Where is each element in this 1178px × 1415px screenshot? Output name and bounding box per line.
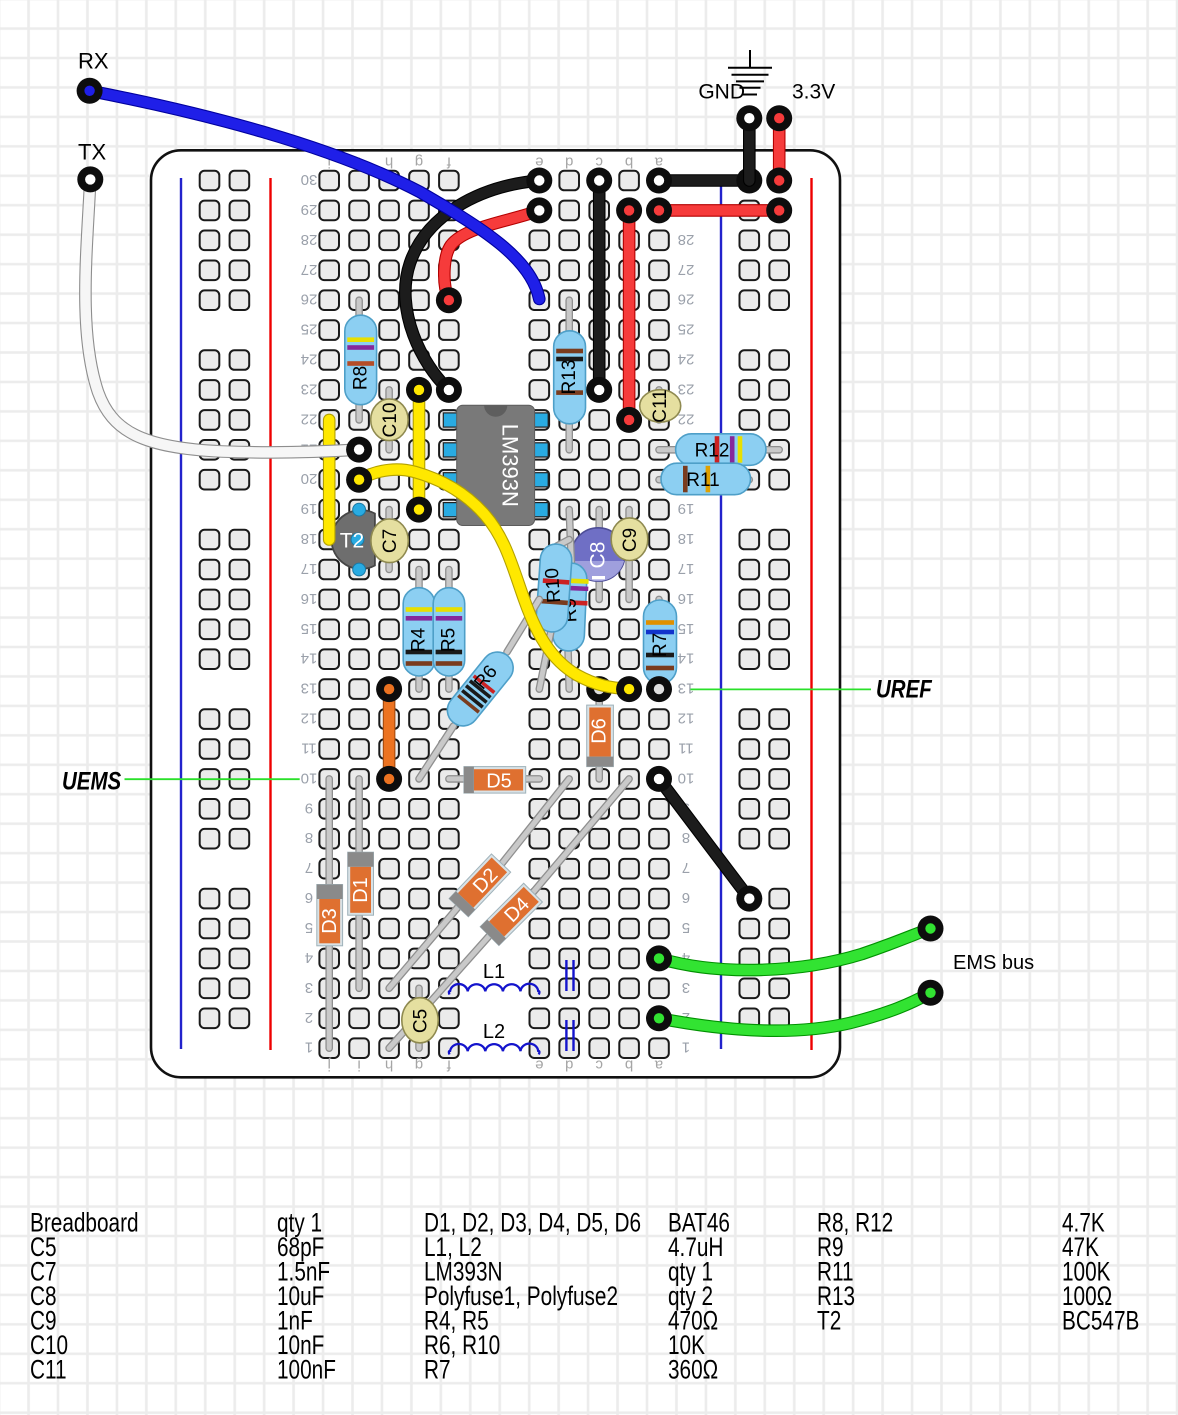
- svg-text:3: 3: [682, 979, 690, 996]
- svg-text:i: i: [357, 1057, 360, 1074]
- svg-text:6: 6: [682, 889, 690, 906]
- svg-text:UEMS: UEMS: [62, 767, 122, 795]
- svg-text:5: 5: [305, 919, 313, 936]
- svg-text:10: 10: [301, 769, 318, 786]
- svg-text:20: 20: [301, 470, 318, 487]
- svg-text:23: 23: [301, 380, 318, 397]
- svg-text:15: 15: [678, 620, 695, 637]
- svg-text:29: 29: [301, 201, 318, 218]
- svg-text:9: 9: [305, 799, 313, 816]
- svg-text:R8: R8: [351, 366, 372, 390]
- svg-text:3.3V: 3.3V: [792, 81, 835, 104]
- svg-text:17: 17: [678, 560, 695, 577]
- svg-text:18: 18: [301, 530, 318, 547]
- svg-text:D5: D5: [486, 771, 512, 793]
- svg-text:8: 8: [305, 829, 313, 846]
- svg-text:17: 17: [301, 560, 318, 577]
- svg-text:25: 25: [678, 321, 695, 338]
- svg-text:27: 27: [301, 261, 318, 278]
- svg-text:6: 6: [305, 889, 313, 906]
- svg-text:a: a: [654, 1057, 663, 1074]
- svg-text:16: 16: [678, 590, 695, 607]
- svg-text:26: 26: [301, 291, 318, 308]
- svg-text:12: 12: [301, 710, 318, 727]
- svg-text:14: 14: [301, 650, 318, 667]
- svg-text:30: 30: [301, 171, 318, 188]
- svg-text:d: d: [565, 154, 573, 171]
- svg-text:3: 3: [305, 979, 313, 996]
- svg-text:R10: R10: [542, 567, 565, 603]
- svg-text:C8: C8: [587, 542, 610, 569]
- svg-text:b: b: [625, 154, 633, 171]
- svg-text:16: 16: [301, 590, 318, 607]
- svg-text:14: 14: [678, 650, 695, 667]
- svg-text:c: c: [595, 1057, 603, 1074]
- svg-text:11: 11: [678, 740, 694, 757]
- svg-text:UREF: UREF: [876, 675, 933, 703]
- svg-text:C11: C11: [30, 1355, 67, 1385]
- svg-text:27: 27: [678, 261, 695, 278]
- svg-text:360Ω: 360Ω: [668, 1355, 718, 1385]
- svg-text:24: 24: [678, 351, 695, 368]
- svg-text:b: b: [625, 1057, 633, 1074]
- svg-text:28: 28: [301, 231, 318, 248]
- svg-text:g: g: [415, 154, 423, 171]
- svg-text:1: 1: [682, 1039, 690, 1056]
- svg-text:26: 26: [678, 291, 695, 308]
- svg-text:C7: C7: [380, 529, 401, 553]
- svg-text:100nF: 100nF: [277, 1355, 336, 1385]
- svg-text:2: 2: [305, 1009, 313, 1026]
- svg-text:D1: D1: [350, 877, 372, 903]
- svg-text:h: h: [385, 1057, 393, 1074]
- svg-text:24: 24: [301, 351, 318, 368]
- svg-text:e: e: [535, 1057, 543, 1074]
- svg-text:L2: L2: [483, 1021, 505, 1043]
- svg-text:R5: R5: [439, 628, 460, 652]
- svg-text:T2: T2: [817, 1306, 841, 1336]
- svg-text:19: 19: [301, 500, 318, 517]
- svg-text:18: 18: [678, 530, 695, 547]
- svg-text:BC547B: BC547B: [1062, 1306, 1139, 1336]
- svg-text:25: 25: [301, 321, 318, 338]
- svg-text:22: 22: [301, 410, 318, 427]
- svg-text:d: d: [565, 1057, 573, 1074]
- svg-text:R11: R11: [686, 470, 719, 491]
- svg-text:C5: C5: [411, 1009, 432, 1033]
- svg-text:R7: R7: [650, 633, 671, 657]
- svg-text:j: j: [328, 1057, 332, 1074]
- svg-text:15: 15: [301, 620, 318, 637]
- svg-text:4: 4: [305, 949, 313, 966]
- svg-text:g: g: [415, 1057, 423, 1074]
- svg-text:13: 13: [678, 680, 695, 697]
- svg-text:C9: C9: [620, 528, 641, 552]
- svg-text:12: 12: [678, 710, 695, 727]
- svg-text:19: 19: [678, 500, 695, 517]
- svg-text:L1: L1: [483, 961, 505, 983]
- svg-text:8: 8: [682, 829, 690, 846]
- svg-text:11: 11: [301, 740, 317, 757]
- svg-text:R12: R12: [695, 441, 730, 462]
- svg-text:22: 22: [678, 410, 695, 427]
- svg-text:C11: C11: [650, 389, 671, 422]
- svg-text:7: 7: [682, 859, 690, 876]
- svg-text:TX: TX: [78, 140, 106, 165]
- svg-text:T2: T2: [340, 530, 365, 553]
- svg-text:10: 10: [678, 769, 695, 786]
- svg-text:R4: R4: [409, 627, 430, 652]
- svg-text:7: 7: [305, 859, 313, 876]
- svg-text:13: 13: [301, 680, 318, 697]
- svg-text:D3: D3: [319, 908, 341, 934]
- svg-text:23: 23: [678, 380, 695, 397]
- svg-text:5: 5: [682, 919, 690, 936]
- svg-text:1: 1: [305, 1039, 313, 1056]
- svg-text:C10: C10: [380, 403, 401, 438]
- svg-text:LM393N: LM393N: [498, 424, 523, 507]
- svg-text:R13: R13: [559, 360, 580, 395]
- svg-text:h: h: [385, 154, 393, 171]
- svg-text:RX: RX: [78, 49, 109, 74]
- svg-text:EMS bus: EMS bus: [953, 952, 1034, 974]
- svg-text:28: 28: [678, 231, 695, 248]
- svg-text:R7: R7: [424, 1355, 451, 1385]
- svg-text:D6: D6: [589, 718, 611, 744]
- svg-text:GND: GND: [698, 81, 745, 104]
